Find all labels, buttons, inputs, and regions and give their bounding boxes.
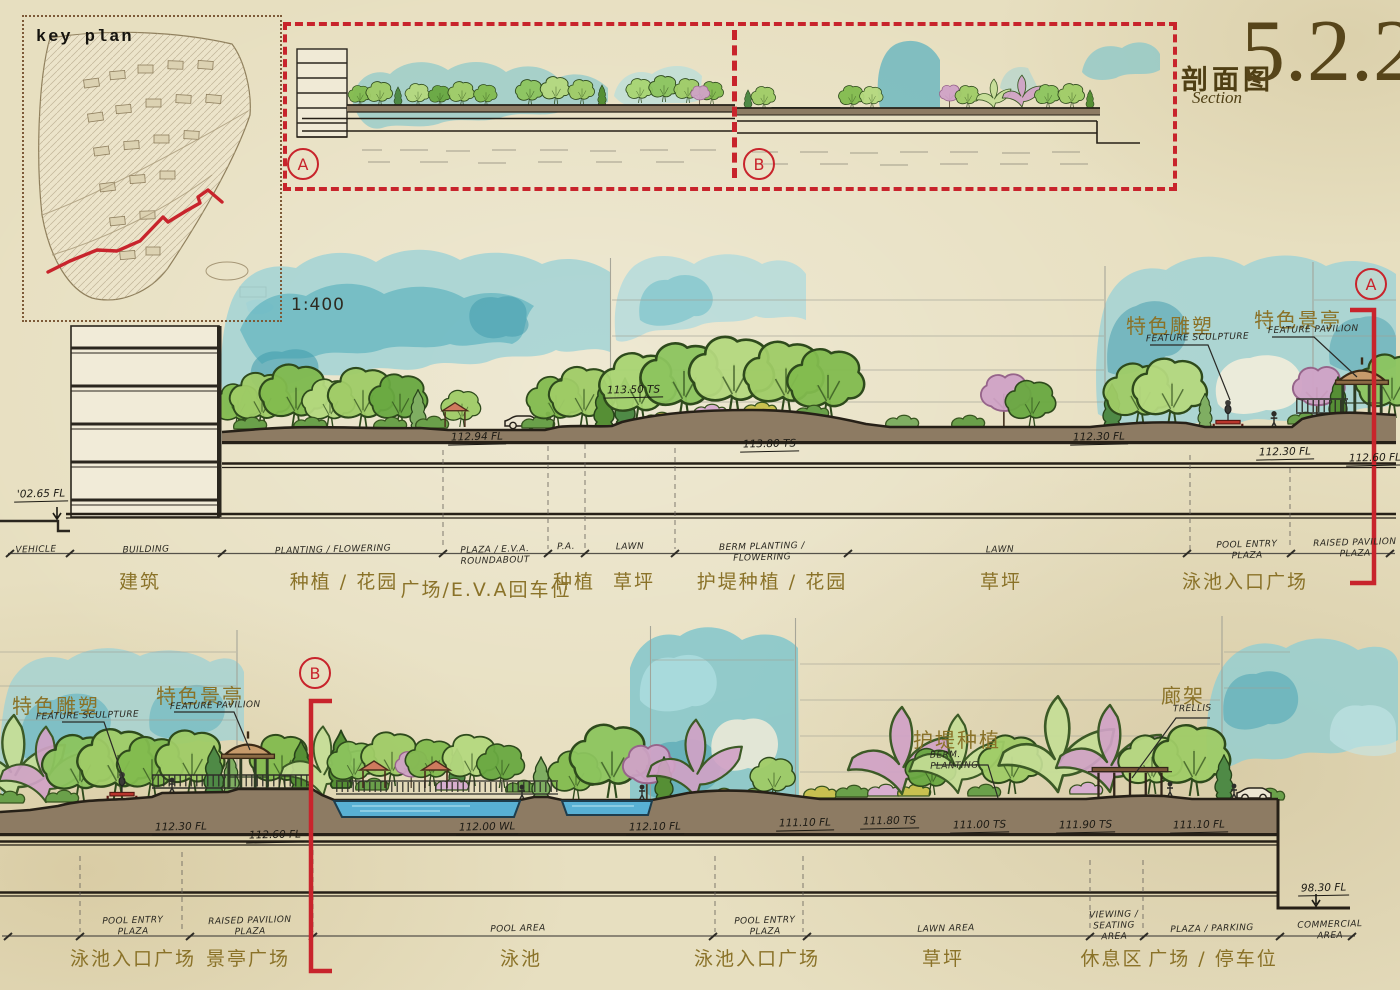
zone-zh: 草坪	[922, 944, 964, 971]
elevation-label: 113.50 TS	[604, 383, 663, 398]
annotation-trellis-en: TRELLIS	[1173, 703, 1212, 715]
sheet-title-en: Section	[1192, 88, 1242, 108]
zone-en: COMMERCIAL AREA	[1287, 919, 1374, 943]
elevation-label: 112.30 FL	[152, 820, 210, 835]
scale-label: 1:400	[291, 295, 345, 315]
zone-en: BUILDING	[122, 544, 169, 556]
zone-en: POOL ENTRY PLAZA	[88, 915, 179, 939]
elevation-label: 111.90 TS	[1056, 818, 1115, 833]
zone-zh: 景亭广场	[206, 944, 290, 971]
zone-zh: 泳池	[500, 944, 542, 971]
zone-zh: 建筑	[119, 567, 161, 594]
elevation-label: 112.94 FL	[448, 430, 506, 445]
zone-en: POOL ENTRY PLAZA	[720, 915, 811, 939]
zone-en: VEHICLE	[15, 544, 56, 556]
annotation-berm-en: BERM. PLANTING	[930, 749, 991, 772]
section-marker-a: A	[1355, 268, 1387, 300]
zone-en: P.A.	[557, 542, 575, 553]
section-marker-b-overview: B	[743, 148, 775, 180]
zone-en: VIEWING / SEATING AREA	[1081, 909, 1148, 943]
overview-highlight-box	[283, 22, 1177, 191]
elevation-label: 111.80 TS	[860, 814, 919, 829]
elevation-label: 111.00 TS	[950, 818, 1009, 833]
elevation-label: 112.10 FL	[626, 820, 684, 835]
elevation-label: 98.30 FL	[1298, 881, 1350, 896]
drawing-sheet: key plan A B 剖面图 Section 5.2.2 1:400 A 特…	[0, 0, 1400, 990]
zone-en: LAWN	[616, 542, 645, 554]
elevation-label: 111.10 FL	[1170, 818, 1228, 833]
zone-zh: 广场/E.V.A回车位	[400, 575, 571, 602]
zone-en: LAWN	[986, 545, 1015, 557]
zone-zh: 种植	[553, 567, 595, 594]
zone-en: POOL AREA	[490, 923, 546, 935]
zone-en: RAISED PAVILION PLAZA	[1312, 537, 1399, 561]
overview-section-divider	[732, 30, 737, 178]
sheet-number: 5.2.2	[1241, 8, 1400, 96]
zone-en: LAWN AREA	[917, 923, 975, 935]
section-marker-b: B	[299, 657, 331, 689]
zone-en: PLAZA / E.V.A. ROUNDABOUT	[449, 544, 542, 568]
zone-en: BERM PLANTING / FLOWERING	[702, 540, 823, 565]
elevation-label: 112.60 FL	[246, 828, 304, 843]
zone-zh: 草坪	[613, 567, 655, 594]
section-marker-a-overview: A	[287, 148, 319, 180]
zone-zh: 广场 / 停车位	[1148, 944, 1277, 971]
zone-zh: 泳池入口广场	[1182, 567, 1308, 594]
elevation-label: 111.10 FL	[776, 816, 834, 831]
zone-zh: 护堤种植 / 花园	[697, 567, 847, 594]
elevation-label: 113.80 TS	[740, 437, 799, 452]
key-plan-title: key plan	[36, 28, 134, 47]
zone-zh: 泳池入口广场	[694, 944, 820, 971]
zone-en: RAISED PAVILION PLAZA	[198, 915, 303, 939]
zone-en: PLAZA / PARKING	[1170, 923, 1254, 936]
zone-zh: 草坪	[980, 567, 1022, 594]
zone-zh: 种植 / 花园	[290, 567, 398, 594]
elevation-label: 112.60 FL	[1346, 451, 1400, 466]
zone-zh: 泳池入口广场	[70, 944, 196, 971]
elevation-label: 112.30 FL	[1070, 430, 1128, 445]
elevation-label: 112.00 WL	[456, 820, 519, 835]
zone-en: POOL ENTRY PLAZA	[1202, 539, 1293, 563]
elevation-label: 112.30 FL	[1256, 445, 1314, 460]
zone-zh: 休息区	[1080, 944, 1143, 971]
elevation-label: '02.65 FL	[14, 487, 68, 502]
key-plan	[22, 15, 282, 322]
